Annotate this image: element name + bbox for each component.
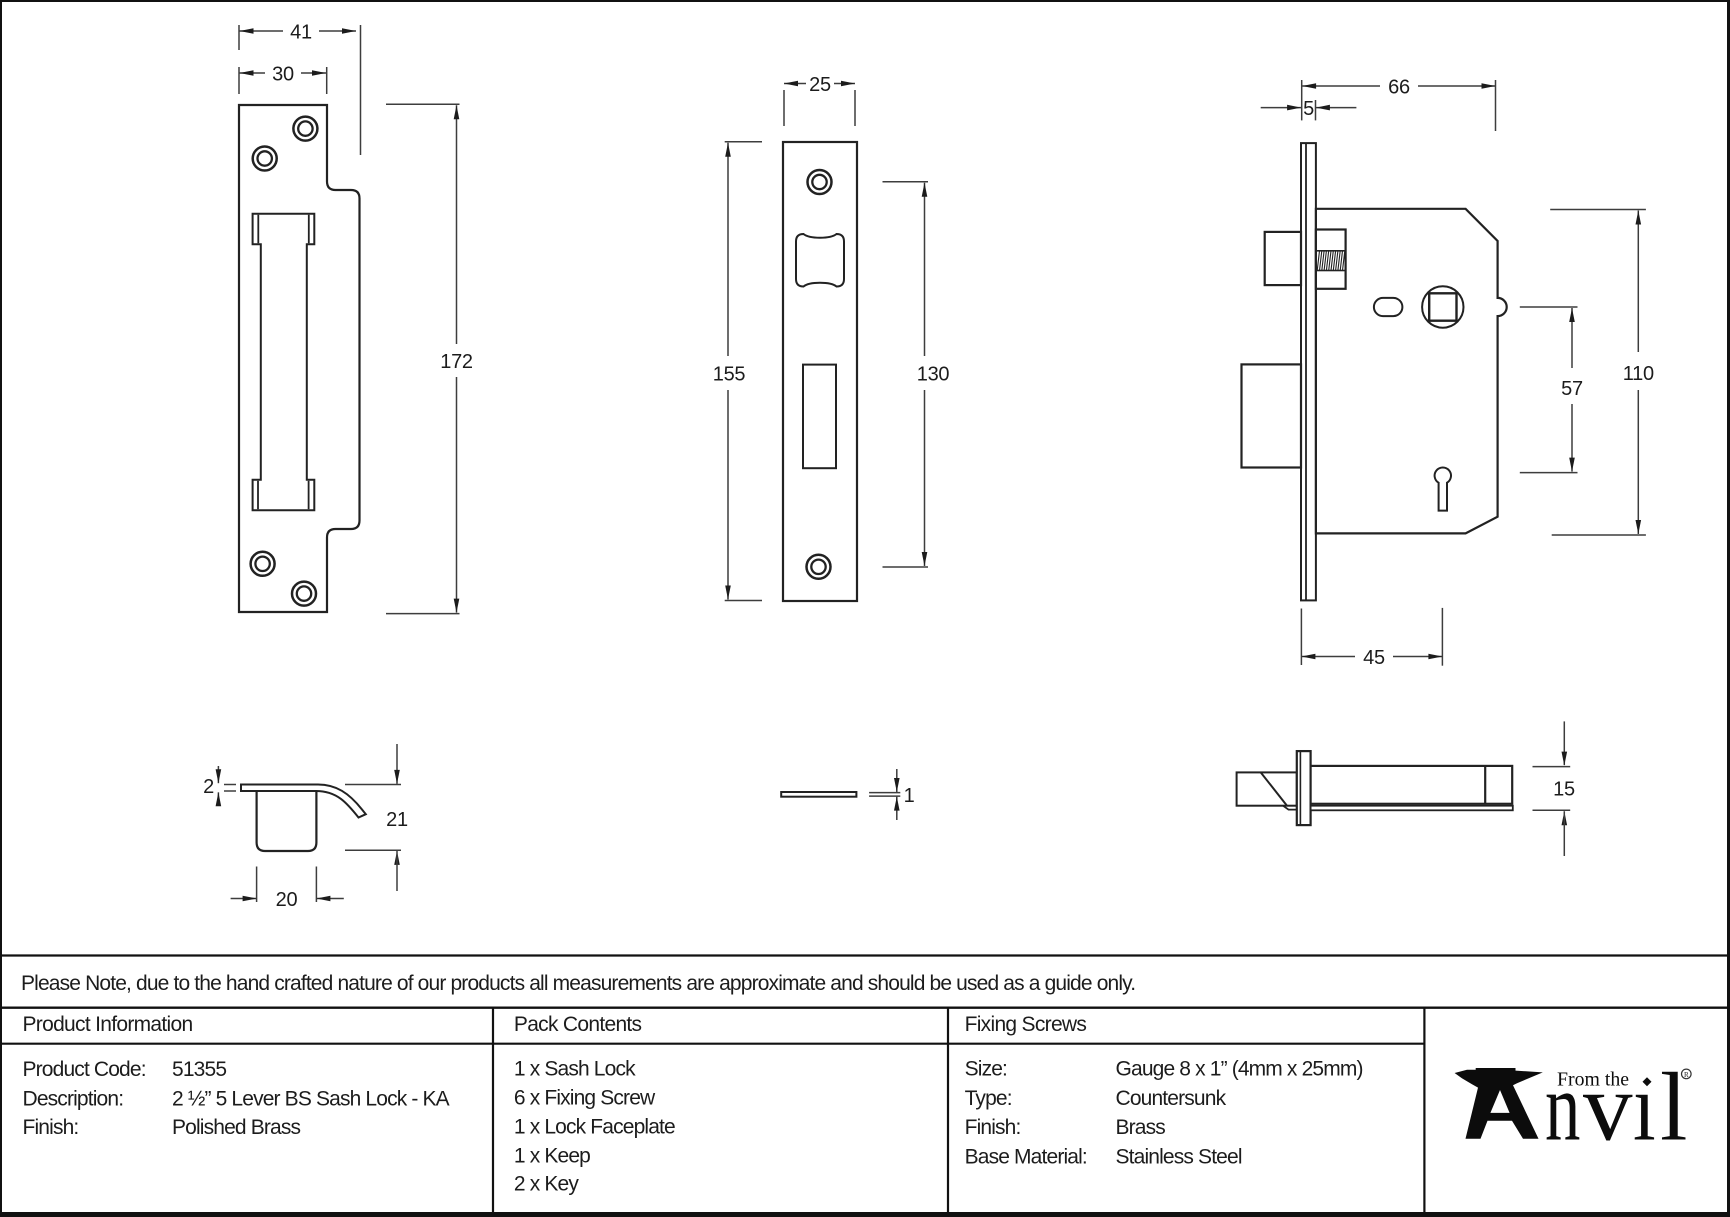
svg-text:15: 15 — [1553, 779, 1575, 801]
svg-text:Type:: Type: — [965, 1087, 1012, 1110]
svg-text:ı: ı — [1633, 1054, 1656, 1161]
svg-text:1: 1 — [904, 785, 915, 807]
svg-text:Size:: Size: — [965, 1058, 1007, 1081]
svg-text:25: 25 — [809, 74, 831, 96]
svg-text:Stainless Steel: Stainless Steel — [1116, 1146, 1242, 1169]
svg-text:2 ½” 5 Lever BS Sash Lock - KA: 2 ½” 5 Lever BS Sash Lock - KA — [172, 1088, 450, 1111]
svg-text:2 x Key: 2 x Key — [514, 1173, 579, 1196]
svg-text:172: 172 — [440, 351, 473, 373]
svg-text:Base Material:: Base Material: — [965, 1146, 1087, 1169]
svg-text:Product Code:: Product Code: — [23, 1058, 146, 1081]
svg-text:n: n — [1545, 1054, 1580, 1161]
svg-text:v: v — [1583, 1054, 1632, 1161]
svg-text:Pack Contents: Pack Contents — [514, 1013, 642, 1036]
svg-text:110: 110 — [1623, 363, 1654, 385]
svg-text:155: 155 — [713, 364, 746, 386]
svg-text:66: 66 — [1388, 77, 1410, 99]
svg-text:Finish:: Finish: — [965, 1116, 1021, 1139]
svg-text:Countersunk: Countersunk — [1116, 1087, 1227, 1110]
svg-text:Gauge 8 x 1” (4mm x 25mm): Gauge 8 x 1” (4mm x 25mm) — [1116, 1058, 1363, 1081]
svg-text:1 x Sash Lock: 1 x Sash Lock — [514, 1057, 636, 1080]
svg-text:Description:: Description: — [23, 1088, 124, 1111]
svg-text:Brass: Brass — [1116, 1116, 1166, 1139]
svg-text:1 x Lock Faceplate: 1 x Lock Faceplate — [514, 1116, 675, 1139]
svg-text:Fixing Screws: Fixing Screws — [965, 1013, 1087, 1036]
svg-text:130: 130 — [917, 364, 950, 386]
svg-text:Product Information: Product Information — [23, 1013, 193, 1036]
svg-text:R: R — [1684, 1071, 1689, 1079]
svg-text:30: 30 — [272, 64, 294, 86]
svg-text:20: 20 — [276, 889, 298, 911]
svg-text:21: 21 — [386, 809, 408, 831]
svg-text:5: 5 — [1303, 98, 1314, 120]
svg-text:57: 57 — [1561, 378, 1583, 400]
svg-text:41: 41 — [290, 22, 312, 44]
svg-text:45: 45 — [1363, 647, 1385, 669]
svg-text:Polished Brass: Polished Brass — [172, 1116, 301, 1139]
svg-text:Please Note, due to the hand c: Please Note, due to the hand crafted nat… — [21, 972, 1135, 995]
svg-text:Finish:: Finish: — [23, 1116, 79, 1139]
svg-text:51355: 51355 — [172, 1058, 226, 1081]
svg-text:1 x Keep: 1 x Keep — [514, 1144, 590, 1167]
svg-text:2: 2 — [203, 776, 214, 798]
svg-text:6 x Fixing Screw: 6 x Fixing Screw — [514, 1087, 656, 1110]
